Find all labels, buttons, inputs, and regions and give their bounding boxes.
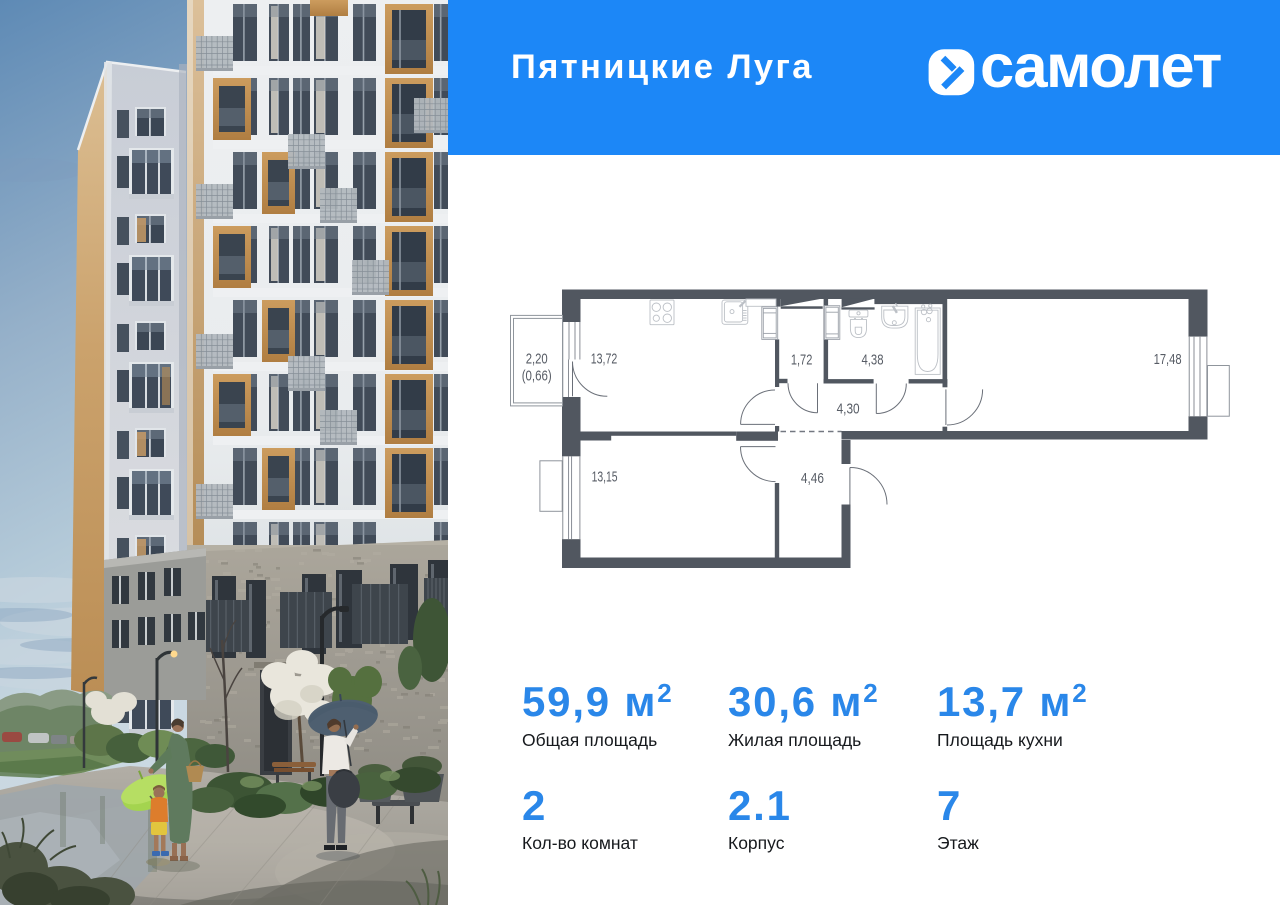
svg-text:4,46: 4,46: [801, 471, 824, 487]
svg-text:17,48: 17,48: [1154, 352, 1182, 368]
svg-text:4,30: 4,30: [837, 402, 860, 418]
svg-text:1,72: 1,72: [791, 353, 813, 369]
svg-text:2,20: 2,20: [526, 352, 548, 368]
svg-text:13,15: 13,15: [592, 470, 618, 486]
svg-text:13,72: 13,72: [591, 352, 618, 368]
svg-text:4,38: 4,38: [862, 353, 884, 369]
svg-text:(0,66): (0,66): [522, 369, 552, 385]
